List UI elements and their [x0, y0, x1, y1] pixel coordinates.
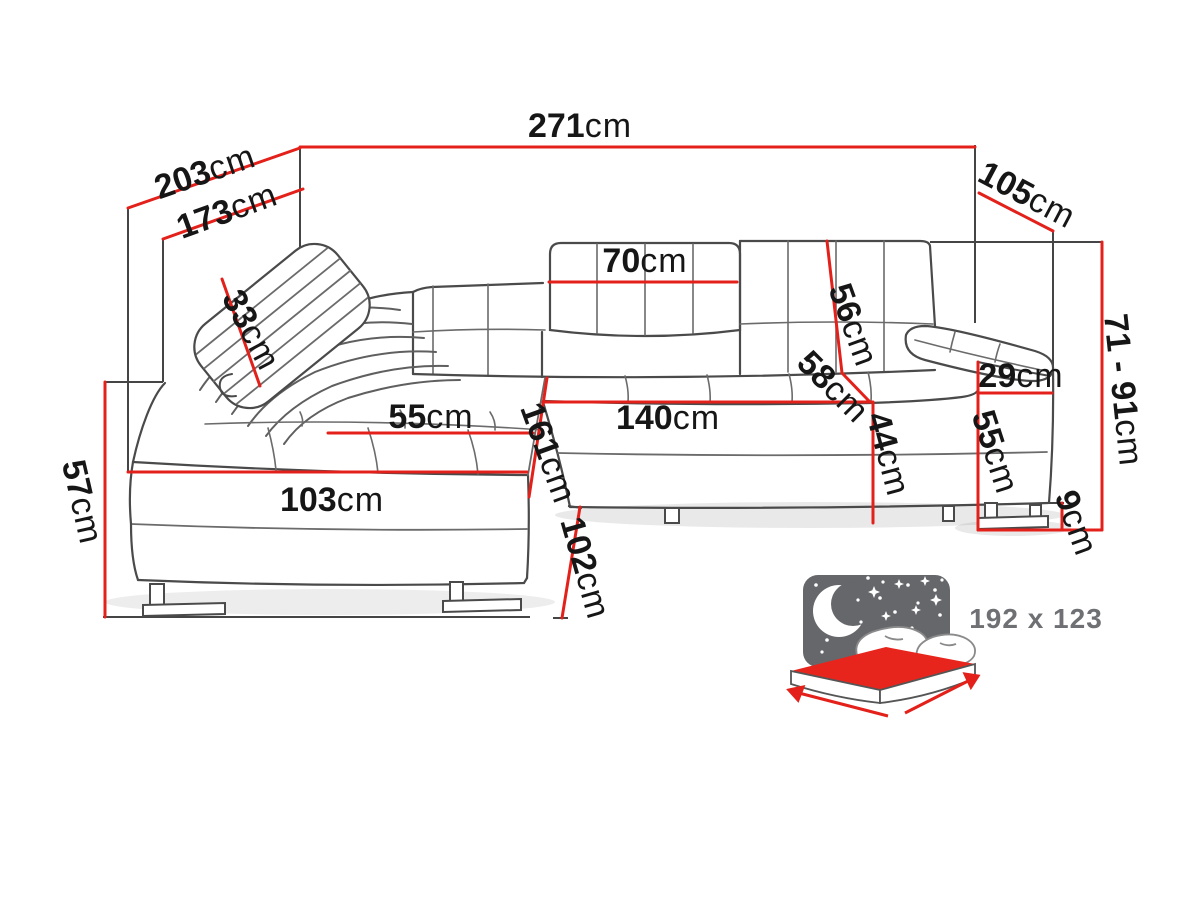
dimension-value: 70 — [602, 242, 640, 280]
dimension-label-seat-width: 140cm — [616, 401, 720, 435]
dimension-unit: cm — [1107, 417, 1150, 468]
dimension-value: 29 — [978, 357, 1016, 395]
dimension-unit: cm — [640, 242, 687, 280]
dimension-unit: cm — [1016, 357, 1063, 395]
dimension-unit: cm — [673, 399, 720, 437]
dimension-label-backrest-cushion-width: 70cm — [602, 244, 687, 278]
dimension-label-chaise-front-width: 103cm — [280, 483, 384, 517]
dimension-value: 103 — [280, 481, 337, 519]
dimension-label-chaise-cushion-width: 55cm — [388, 400, 473, 434]
dimension-unit: cm — [337, 481, 384, 519]
sleeping-area-value: 192 x 123 — [969, 603, 1103, 634]
dimension-value: 271 — [528, 107, 585, 145]
dimension-unit: cm — [426, 398, 473, 436]
sleeping-area-size-label: 192 x 123 — [969, 603, 1103, 635]
dimension-label-total-width: 271cm — [528, 109, 632, 143]
sleeping-function-icon — [789, 575, 978, 716]
dimension-value: 140 — [616, 399, 673, 437]
dimension-label-armrest-top-width: 29cm — [978, 359, 1063, 393]
dimension-value: 55 — [388, 398, 426, 436]
dimension-unit: cm — [585, 107, 632, 145]
sofa-dimension-diagram: 271cm 203cm 173cm 105cm 71 - 91cm 33cm 7… — [0, 0, 1200, 900]
